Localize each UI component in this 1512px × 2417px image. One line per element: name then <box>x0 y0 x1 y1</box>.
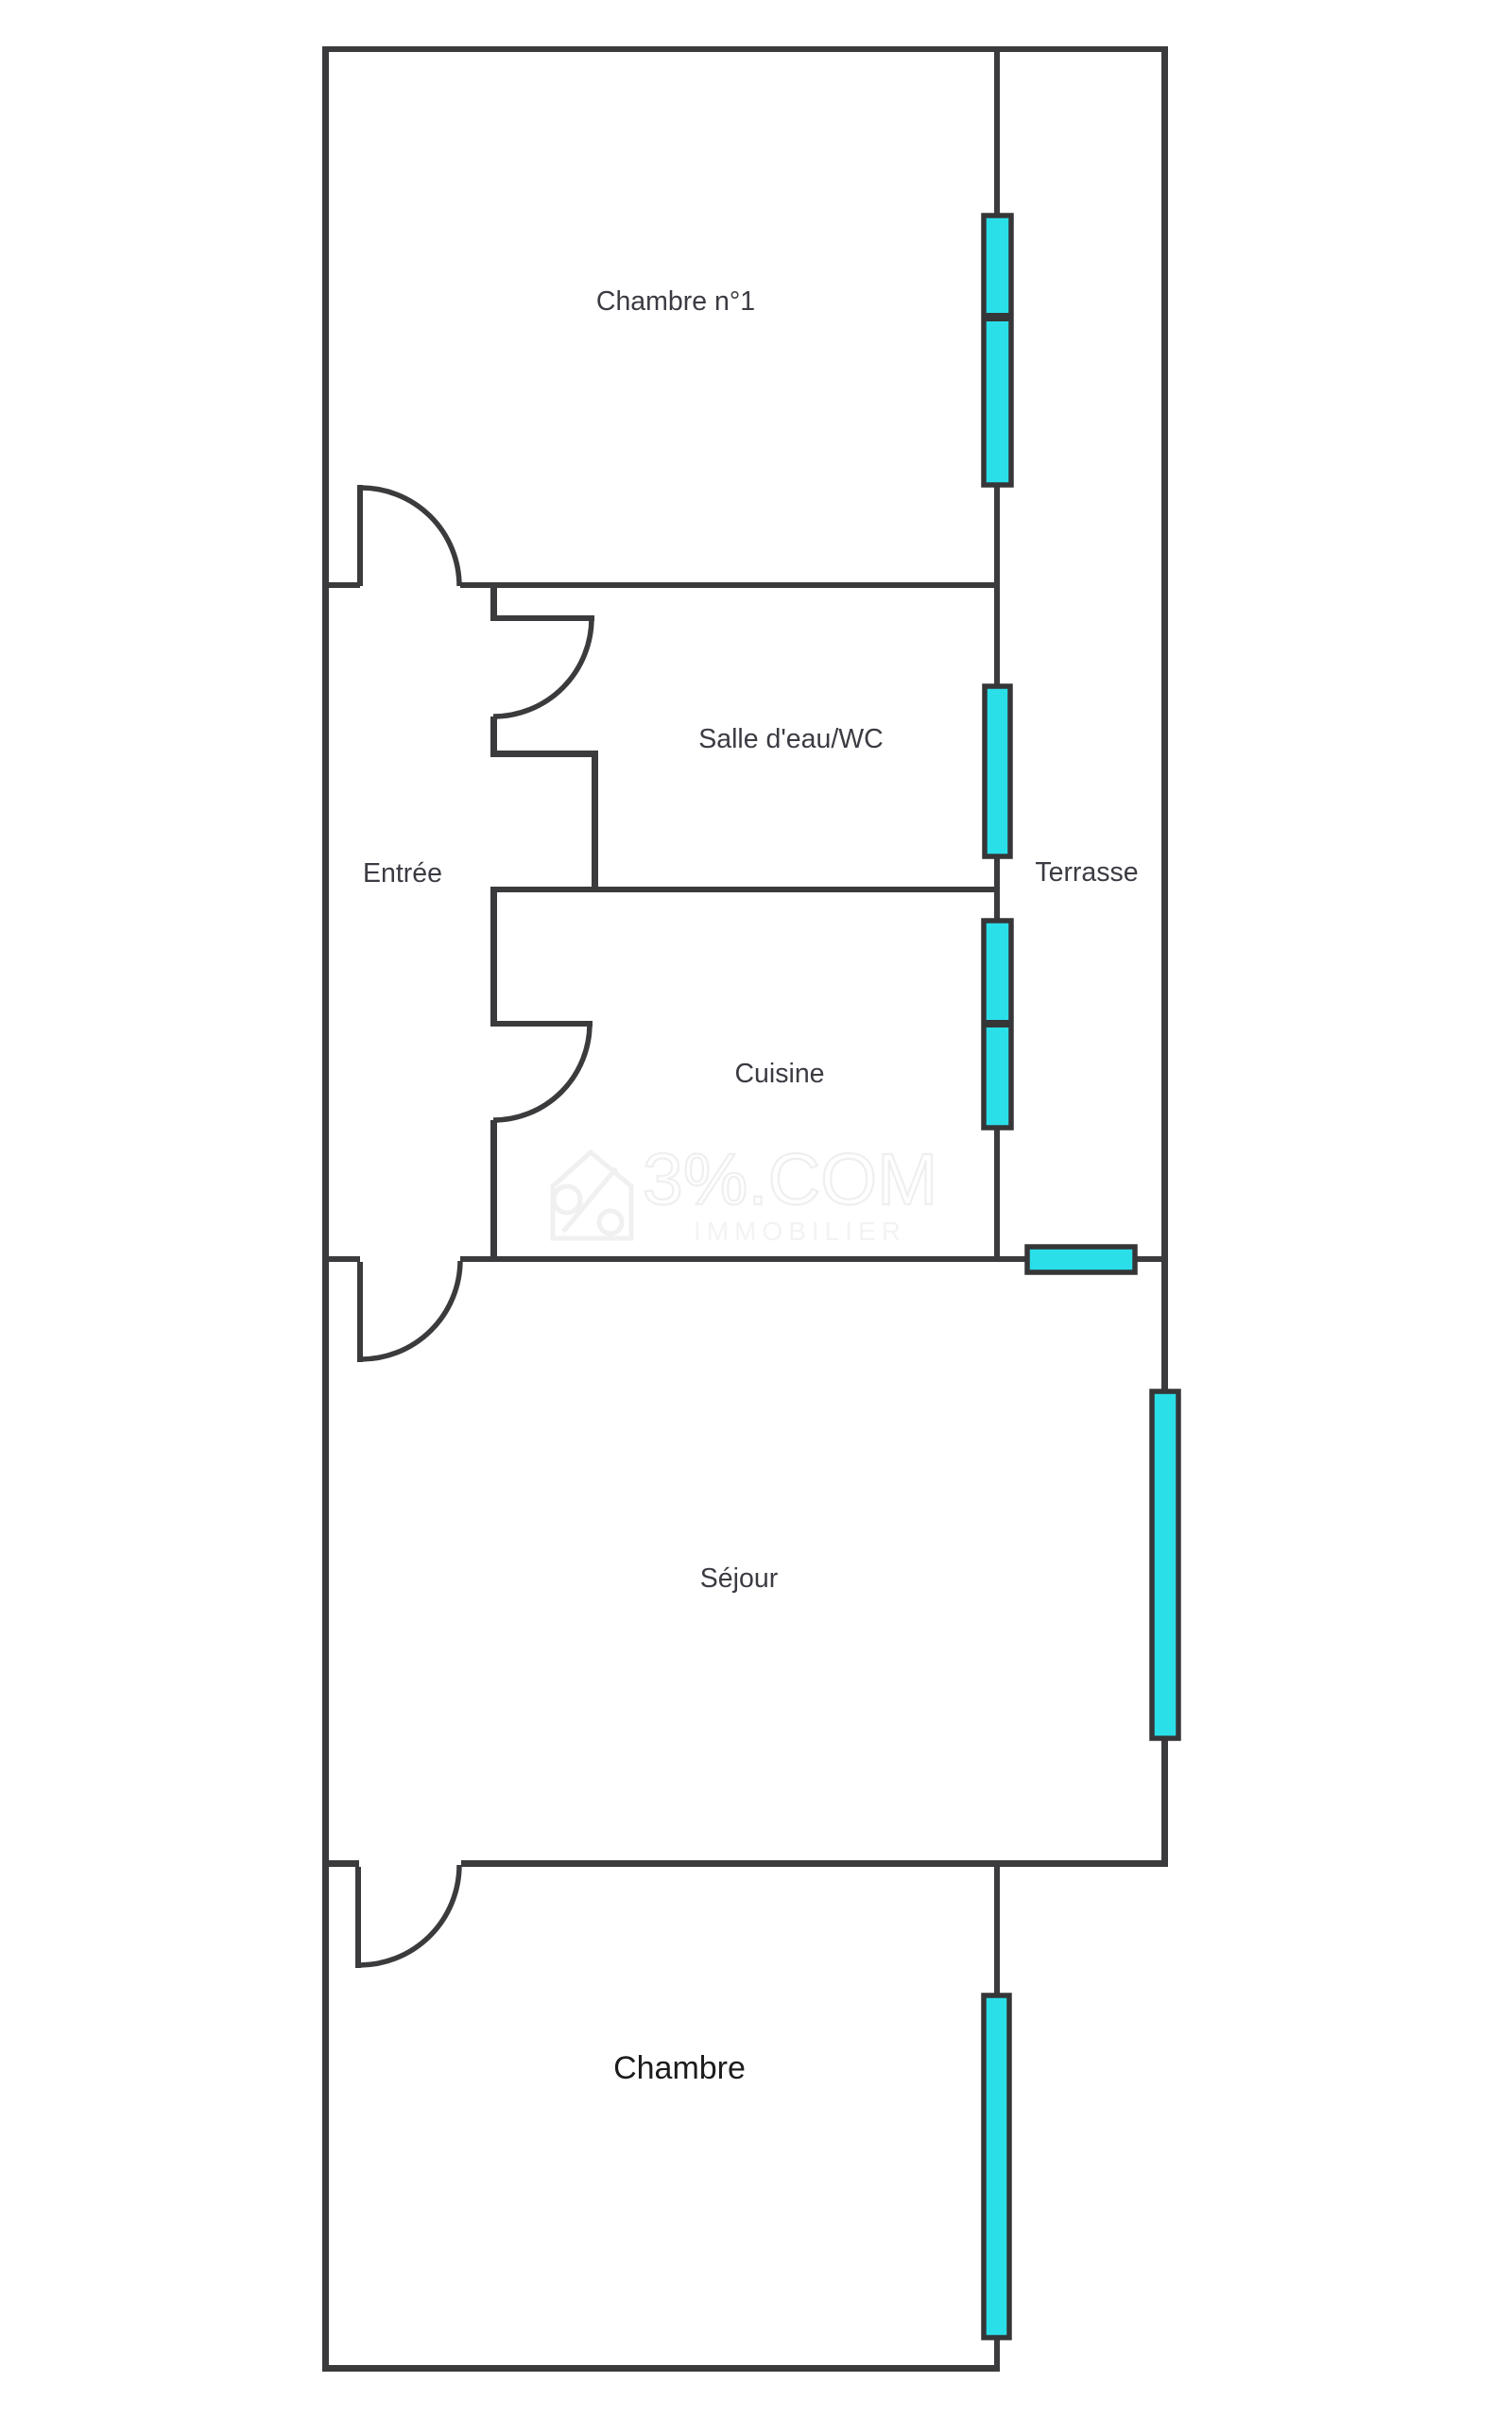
svg-text:IMMOBILIER: IMMOBILIER <box>694 1217 906 1246</box>
svg-text:3%.COM: 3%.COM <box>643 1139 937 1220</box>
svg-text:Cuisine: Cuisine <box>734 1059 824 1089</box>
svg-text:Salle d'eau/WC: Salle d'eau/WC <box>698 724 884 754</box>
svg-text:Chambre: Chambre <box>613 2050 746 2086</box>
svg-text:Terrasse: Terrasse <box>1035 857 1138 888</box>
svg-text:Séjour: Séjour <box>700 1563 779 1594</box>
svg-text:Entrée: Entrée <box>363 858 442 889</box>
svg-text:Chambre n°1: Chambre n°1 <box>596 286 755 317</box>
